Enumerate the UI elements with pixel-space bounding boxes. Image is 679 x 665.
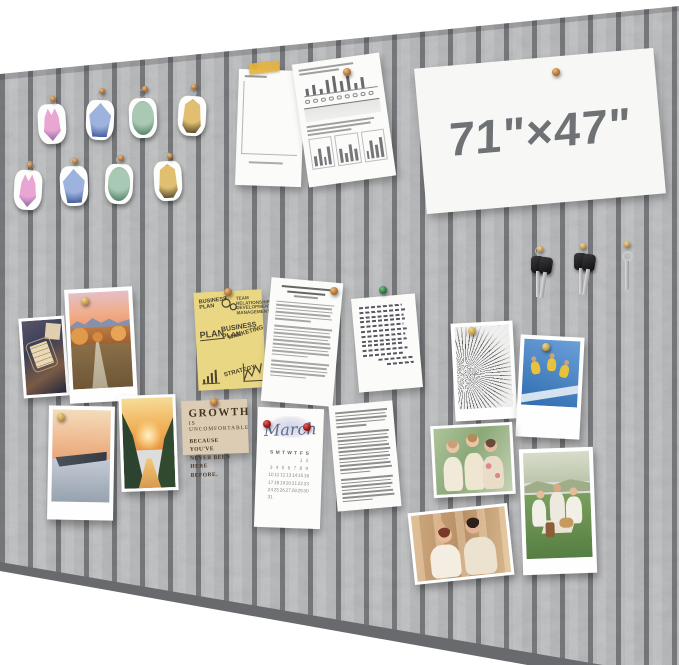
guitar: [560, 517, 574, 528]
badge-sticker: [128, 98, 157, 139]
photo-airplane-wing: [47, 405, 115, 520]
badge-emblem: [156, 163, 180, 198]
photo-river-sunset: [118, 394, 178, 492]
push-pin-gold: [99, 88, 105, 94]
push-pin-red: [263, 420, 271, 428]
push-pin-gold: [537, 246, 543, 252]
badge-emblem: [62, 169, 85, 204]
badge-emblem: [40, 106, 64, 141]
yellow-plan-note: BUSINESS PLAN TEAM RELATIONSHIP DEVELOPM…: [193, 289, 266, 390]
push-pin-gold: [580, 243, 586, 249]
growth-subtitle: IS UNCOMFORTABLE: [189, 419, 242, 433]
badge-sticker: [13, 169, 43, 210]
push-pin-gold: [57, 413, 65, 421]
growth-quote-card: GROWTH IS UNCOMFORTABLE BECAUSE YOU'VE N…: [181, 399, 249, 455]
board-size-label: 71"×47": [419, 47, 661, 215]
growth-line-5: BEFORE.: [191, 470, 244, 480]
badge-emblem: [107, 167, 130, 202]
push-pin-bronze: [210, 398, 218, 406]
badge-sticker: [104, 164, 133, 205]
badge-emblem: [180, 98, 204, 133]
photo-wine-labels: [18, 315, 69, 398]
chart-caption-placeholder: [249, 161, 283, 164]
key-set: [529, 252, 551, 302]
badge-emblem: [131, 101, 154, 136]
push-pin-bronze: [343, 68, 351, 76]
push-pin-red: [303, 423, 311, 431]
push-pin-gold: [118, 155, 124, 161]
badge-emblem: [16, 172, 40, 207]
size-card: 71"×47": [414, 48, 666, 214]
growth-word: GROWTH: [188, 406, 241, 420]
push-pin-bronze: [330, 287, 338, 295]
gears-doodle-icon: [220, 295, 239, 314]
note-label-business-plan: BUSINESS PLAN: [198, 297, 221, 311]
push-pin-bronze: [224, 288, 232, 296]
badge-sticker: [85, 100, 114, 141]
push-pin-gold: [142, 86, 148, 92]
photo-picnic-group: [519, 447, 597, 576]
note-label-team: TEAM RELATIONSHIP DEVELOPMENT MANAGEMENT: [236, 296, 259, 316]
chart-title-placeholder: [245, 75, 267, 78]
push-pin-gold: [468, 327, 476, 335]
push-pin-gold: [542, 343, 550, 351]
photo-sailing-friends: [515, 334, 584, 439]
growth-line-4: NEVER BEEN HERE: [190, 453, 244, 472]
growth-line-3: BECAUSE YOU'VE: [189, 436, 243, 455]
photo-three-women: [430, 422, 516, 498]
push-pin-gold: [167, 153, 173, 159]
push-pin-bronze: [552, 68, 560, 76]
push-pin-gold: [191, 84, 197, 90]
badge-sticker: [153, 160, 183, 201]
felt-board: 71"×47" BUSINESS PLAN TEA: [0, 0, 679, 665]
bar-chart-area: [241, 81, 300, 156]
photo-autumn-road: [64, 286, 138, 403]
badge-sticker: [37, 103, 67, 144]
bar-doodle-icon: [201, 368, 220, 385]
push-pin-green: [379, 286, 387, 294]
calendar-grid: SMTWTFS123456789101112131415161718192021…: [267, 450, 310, 501]
push-pin-gold: [50, 96, 56, 102]
badge-sticker: [177, 95, 207, 136]
dense-text-document: [329, 400, 402, 511]
typed-document: [261, 277, 344, 407]
handwritten-letter: [351, 293, 423, 392]
badge-sticker: [59, 166, 88, 207]
picnic-basket: [545, 522, 555, 537]
key-set: [616, 247, 638, 297]
line-chart-doodle-icon: [242, 361, 263, 382]
push-pin-gold: [81, 297, 89, 305]
product-photo-stage: 71"×47" BUSINESS PLAN TEA: [0, 0, 679, 665]
push-pin-gold: [72, 158, 78, 164]
push-pin-gold: [27, 162, 33, 168]
photo-palm-leaf: [450, 320, 517, 421]
push-pin-gold: [624, 241, 630, 247]
photo-two-women-waving: [408, 503, 515, 585]
key-set: [572, 249, 594, 299]
badge-emblem: [88, 103, 111, 138]
